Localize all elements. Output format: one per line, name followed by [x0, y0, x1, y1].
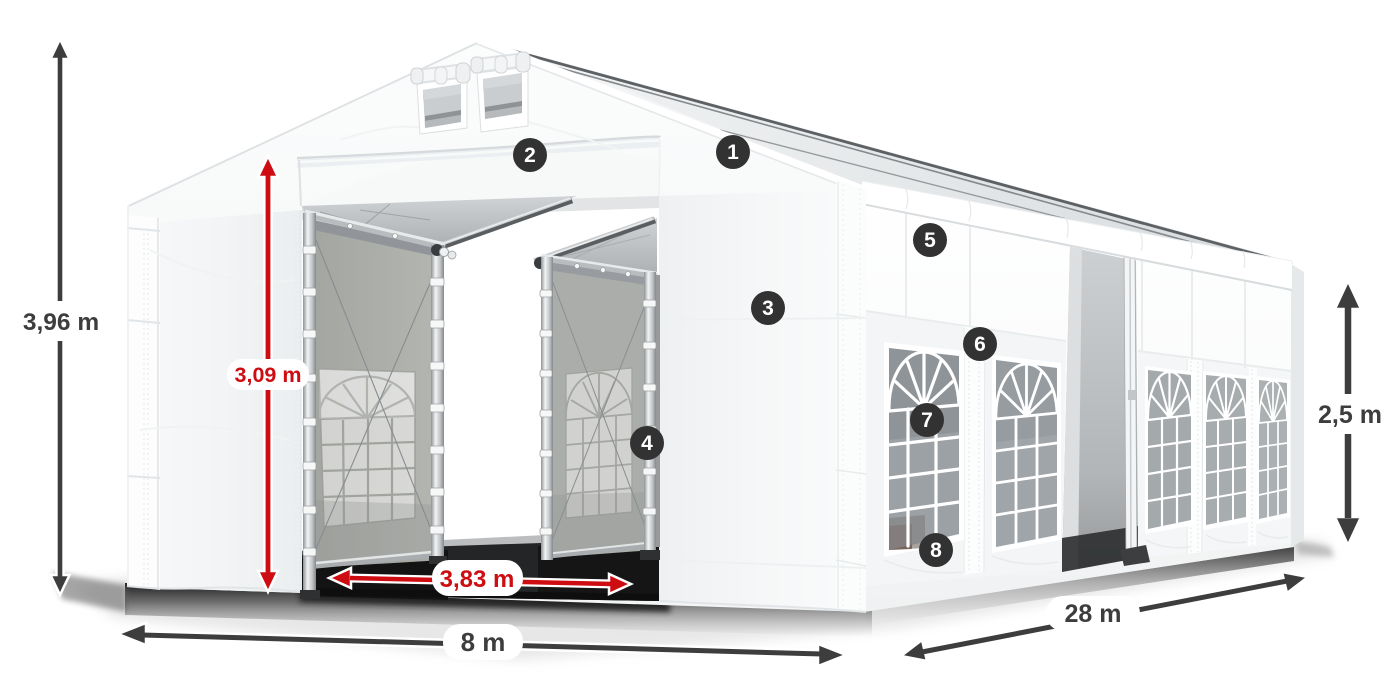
- svg-text:3,09 m: 3,09 m: [235, 363, 302, 387]
- svg-text:7: 7: [921, 409, 933, 432]
- svg-text:8 m: 8 m: [461, 627, 506, 657]
- svg-text:28 m: 28 m: [1065, 600, 1122, 628]
- svg-text:3,96 m: 3,96 m: [23, 309, 99, 336]
- svg-text:2,5 m: 2,5 m: [1318, 401, 1382, 429]
- svg-text:4: 4: [641, 432, 653, 455]
- svg-text:2: 2: [524, 144, 536, 167]
- svg-text:1: 1: [727, 141, 739, 164]
- svg-text:6: 6: [974, 333, 986, 356]
- svg-text:5: 5: [924, 229, 936, 252]
- svg-text:3: 3: [762, 297, 774, 320]
- svg-text:3,83 m: 3,83 m: [440, 566, 515, 593]
- svg-text:8: 8: [930, 539, 942, 562]
